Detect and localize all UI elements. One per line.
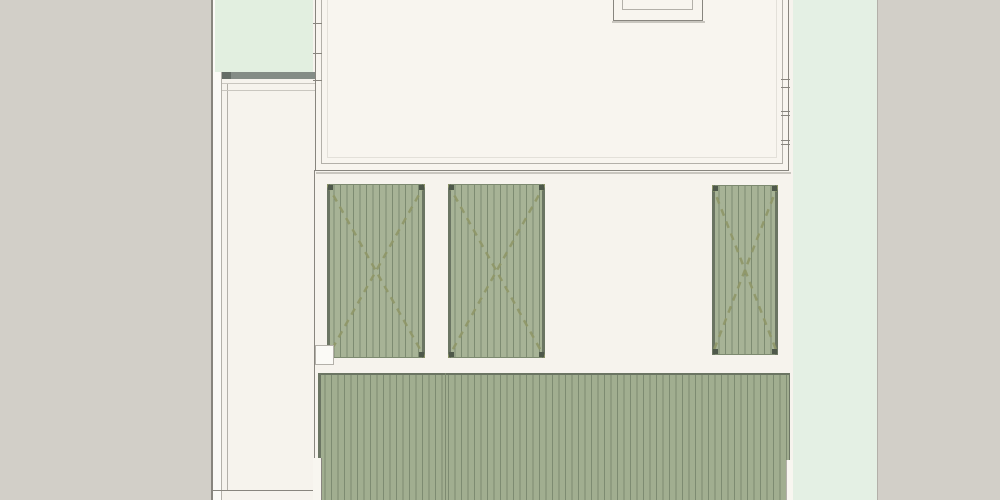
court-edge-bar-cap (222, 72, 231, 79)
main-deck-seam-line (445, 373, 446, 500)
window-mullion-right-4 (781, 115, 790, 116)
passage-fence-line (227, 83, 228, 490)
deck-panel-middle (448, 184, 545, 358)
window-mullion-left-3 (313, 80, 322, 81)
deck-panel-left-cross-brace-icon (327, 184, 425, 358)
passage-step-line-b (222, 90, 315, 91)
passage-step-box (315, 345, 334, 365)
site-plan-canvas (0, 0, 1000, 500)
window-mullion-left-2 (313, 53, 322, 54)
deck-right-notch (786, 460, 793, 500)
patio-divider-line (314, 170, 315, 458)
right-verge (793, 0, 877, 500)
window-mullion-left-1 (313, 23, 322, 24)
right-verge-edge-line (877, 0, 878, 500)
window-mullion-right-1 (781, 79, 790, 80)
skylight-inner-frame (622, 0, 693, 10)
deck-panel-left (327, 184, 425, 358)
left-boundary-inner-line (221, 72, 222, 500)
window-mullion-right-3 (781, 111, 790, 112)
main-deck (318, 373, 790, 500)
left-court (215, 0, 313, 72)
deck-panel-middle-cross-brace-icon (448, 184, 545, 358)
deck-right-notch-line (786, 460, 787, 500)
court-edge-bar (222, 72, 315, 79)
building-drop-shadow (316, 172, 791, 174)
window-mullion-right-2 (781, 87, 790, 88)
passage-step-line-a (222, 83, 315, 84)
passage-end-line (213, 490, 315, 491)
window-mullion-right-6 (781, 144, 790, 145)
main-deck-left-edge (318, 373, 321, 458)
deck-left-notch-line (321, 458, 322, 500)
building-inset-line (327, 0, 777, 158)
deck-panel-right (712, 185, 778, 355)
deck-panel-right-cross-brace-icon (712, 185, 778, 355)
skylight-shadow (612, 21, 705, 23)
window-mullion-right-5 (781, 140, 790, 141)
